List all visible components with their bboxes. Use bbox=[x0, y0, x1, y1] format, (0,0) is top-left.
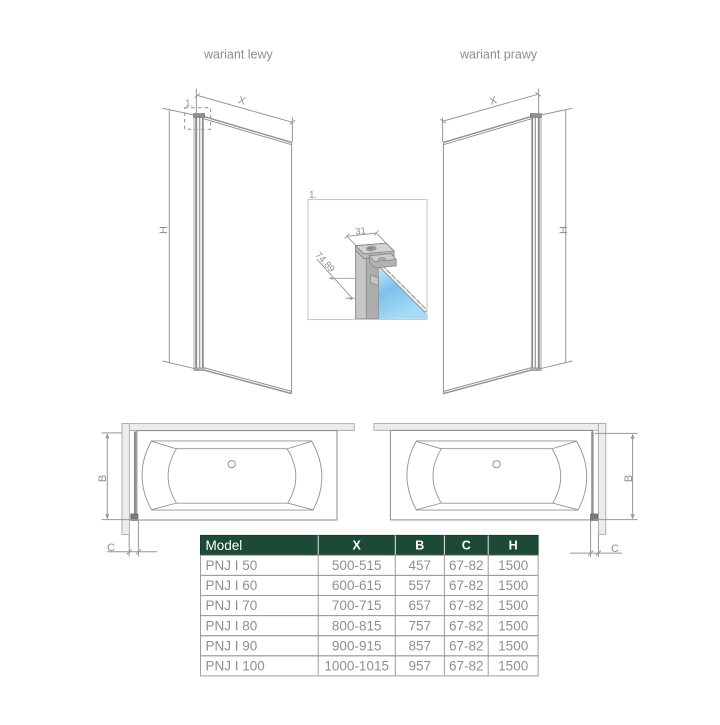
svg-text:67-82: 67-82 bbox=[449, 578, 484, 593]
svg-text:1.: 1. bbox=[185, 99, 193, 110]
svg-text:PNJ I 80: PNJ I 80 bbox=[206, 618, 258, 633]
svg-text:B: B bbox=[623, 475, 635, 482]
svg-text:1500: 1500 bbox=[498, 659, 528, 674]
svg-text:67-82: 67-82 bbox=[449, 659, 484, 674]
svg-text:600-615: 600-615 bbox=[332, 578, 382, 593]
svg-text:557: 557 bbox=[409, 578, 432, 593]
svg-text:1500: 1500 bbox=[498, 598, 528, 613]
svg-text:957: 957 bbox=[409, 659, 432, 674]
svg-text:C: C bbox=[611, 543, 619, 555]
svg-text:800-815: 800-815 bbox=[332, 618, 382, 633]
svg-text:H: H bbox=[158, 226, 170, 234]
svg-text:457: 457 bbox=[409, 558, 432, 573]
svg-text:C: C bbox=[462, 539, 471, 553]
svg-text:31: 31 bbox=[355, 225, 367, 237]
svg-text:wariant prawy: wariant prawy bbox=[459, 48, 538, 62]
svg-text:857: 857 bbox=[409, 638, 432, 653]
svg-text:1500: 1500 bbox=[498, 618, 528, 633]
svg-text:67-82: 67-82 bbox=[449, 558, 484, 573]
svg-text:PNJ I 100: PNJ I 100 bbox=[206, 659, 265, 674]
svg-text:B: B bbox=[415, 539, 424, 553]
svg-text:1.: 1. bbox=[309, 190, 317, 201]
svg-text:1500: 1500 bbox=[498, 638, 528, 653]
svg-text:PNJ I 60: PNJ I 60 bbox=[206, 578, 258, 593]
svg-text:X: X bbox=[353, 539, 362, 553]
svg-text:67-82: 67-82 bbox=[449, 638, 484, 653]
svg-text:67-82: 67-82 bbox=[449, 598, 484, 613]
svg-text:PNJ I 90: PNJ I 90 bbox=[206, 638, 258, 653]
svg-text:67-82: 67-82 bbox=[449, 618, 484, 633]
svg-text:Model: Model bbox=[206, 538, 243, 553]
svg-text:757: 757 bbox=[409, 618, 432, 633]
svg-text:B: B bbox=[97, 475, 109, 482]
svg-text:500-515: 500-515 bbox=[332, 558, 382, 573]
svg-text:700-715: 700-715 bbox=[332, 598, 382, 613]
svg-text:H: H bbox=[509, 539, 518, 553]
svg-text:C: C bbox=[107, 542, 115, 554]
svg-text:H: H bbox=[558, 226, 570, 234]
svg-text:900-915: 900-915 bbox=[332, 638, 382, 653]
svg-text:PNJ I 70: PNJ I 70 bbox=[206, 598, 258, 613]
svg-text:1500: 1500 bbox=[498, 578, 528, 593]
svg-text:wariant lewy: wariant lewy bbox=[203, 48, 274, 62]
svg-text:657: 657 bbox=[409, 598, 432, 613]
svg-text:PNJ I 50: PNJ I 50 bbox=[206, 558, 258, 573]
svg-text:1000-1015: 1000-1015 bbox=[324, 659, 389, 674]
svg-text:1500: 1500 bbox=[498, 558, 528, 573]
